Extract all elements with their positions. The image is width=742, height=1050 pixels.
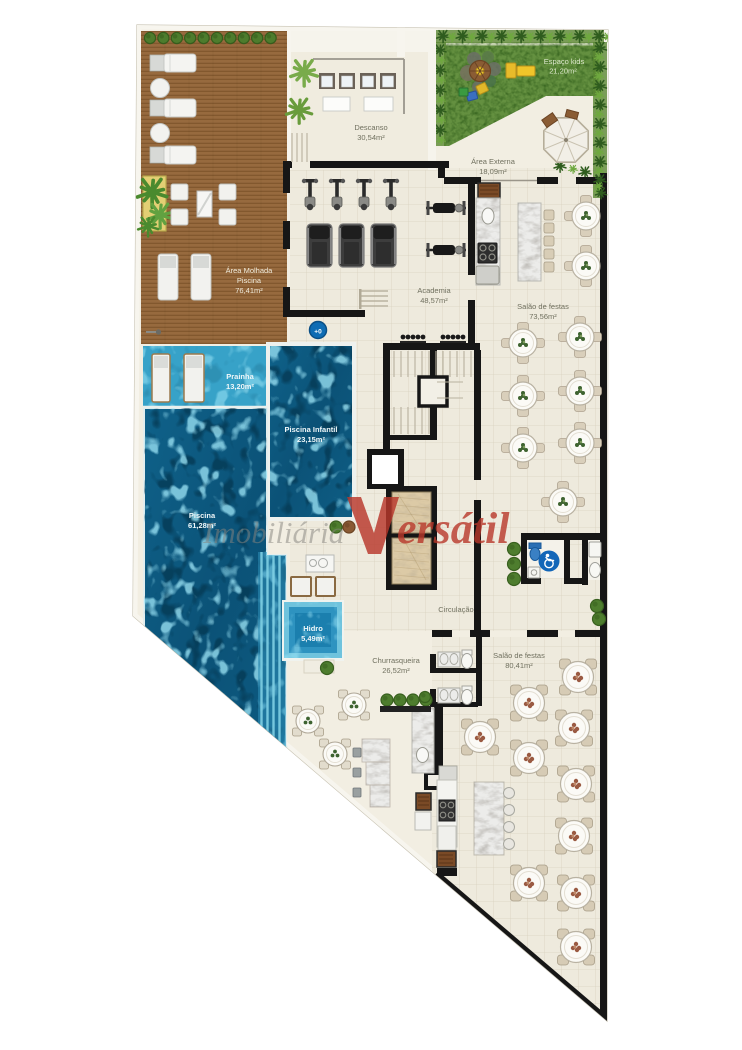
svg-text:Imobiliária: Imobiliária: [202, 515, 344, 550]
svg-text:30,54m²: 30,54m²: [357, 133, 385, 142]
svg-text:26,52m²: 26,52m²: [382, 666, 410, 675]
svg-text:5,49m²: 5,49m²: [301, 634, 325, 643]
svg-text:Piscina: Piscina: [237, 276, 262, 285]
svg-text:Área Externa: Área Externa: [471, 157, 516, 166]
svg-text:18,09m²: 18,09m²: [479, 167, 507, 176]
svg-text:Área Molhada: Área Molhada: [226, 266, 274, 275]
svg-text:73,56m²: 73,56m²: [529, 312, 557, 321]
svg-text:Salão de festas: Salão de festas: [493, 651, 545, 660]
svg-text:Churrasqueira: Churrasqueira: [372, 656, 420, 665]
svg-text:13,20m²: 13,20m²: [226, 382, 254, 391]
svg-text:48,57m²: 48,57m²: [420, 296, 448, 305]
svg-text:ersátil: ersátil: [397, 504, 510, 553]
svg-text:Espaço kids: Espaço kids: [544, 57, 585, 66]
svg-text:23,15m²: 23,15m²: [297, 435, 325, 444]
svg-text:Circulação: Circulação: [438, 605, 473, 614]
svg-text:76,41m²: 76,41m²: [235, 286, 263, 295]
svg-text:Descanso: Descanso: [354, 123, 387, 132]
svg-text:21,20m²: 21,20m²: [549, 67, 577, 76]
svg-text:Hidro: Hidro: [303, 624, 323, 633]
svg-text:Piscina Infantil: Piscina Infantil: [285, 425, 338, 434]
svg-text:Prainha: Prainha: [226, 372, 254, 381]
svg-text:Academia: Academia: [417, 286, 451, 295]
svg-text:+0: +0: [314, 329, 322, 336]
svg-text:80,41m²: 80,41m²: [505, 661, 533, 670]
svg-text:Salão de festas: Salão de festas: [517, 302, 569, 311]
